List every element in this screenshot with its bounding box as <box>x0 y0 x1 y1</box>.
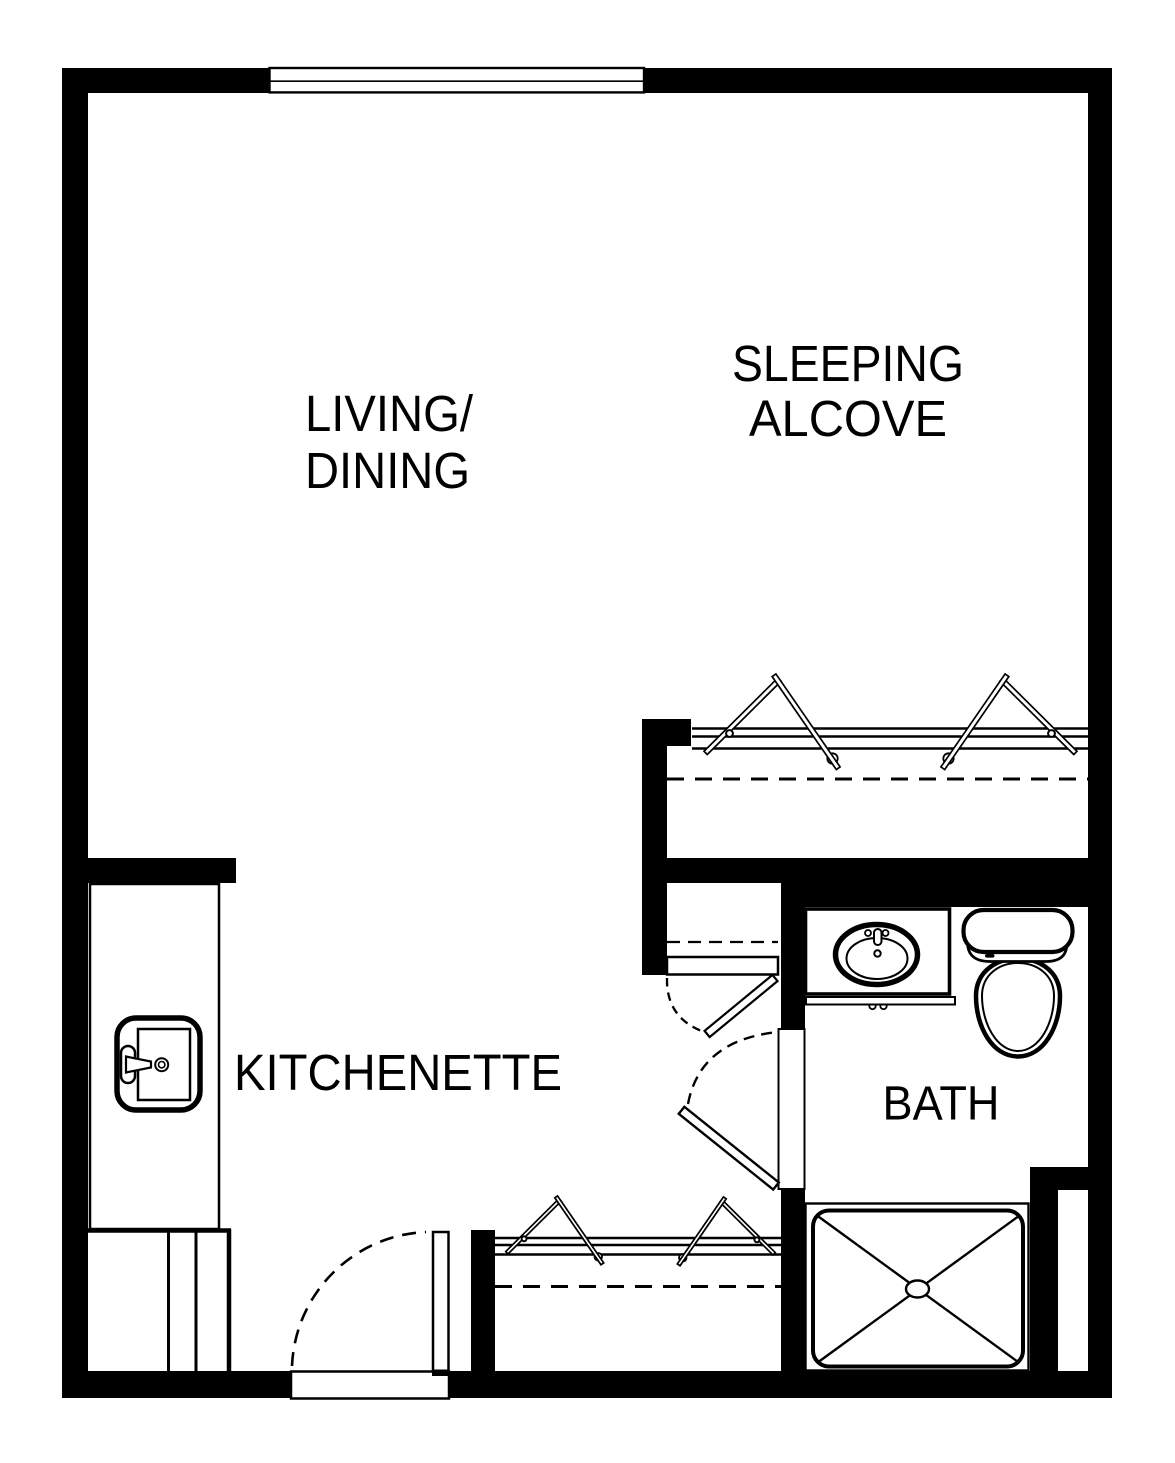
svg-text:KITCHENETTE: KITCHENETTE <box>234 1044 562 1101</box>
svg-text:BATH: BATH <box>883 1078 1000 1131</box>
svg-text:SLEEPING: SLEEPING <box>732 335 964 392</box>
svg-text:LIVING/: LIVING/ <box>305 385 474 442</box>
svg-text:DINING: DINING <box>305 442 470 499</box>
svg-text:ALCOVE: ALCOVE <box>749 390 947 447</box>
